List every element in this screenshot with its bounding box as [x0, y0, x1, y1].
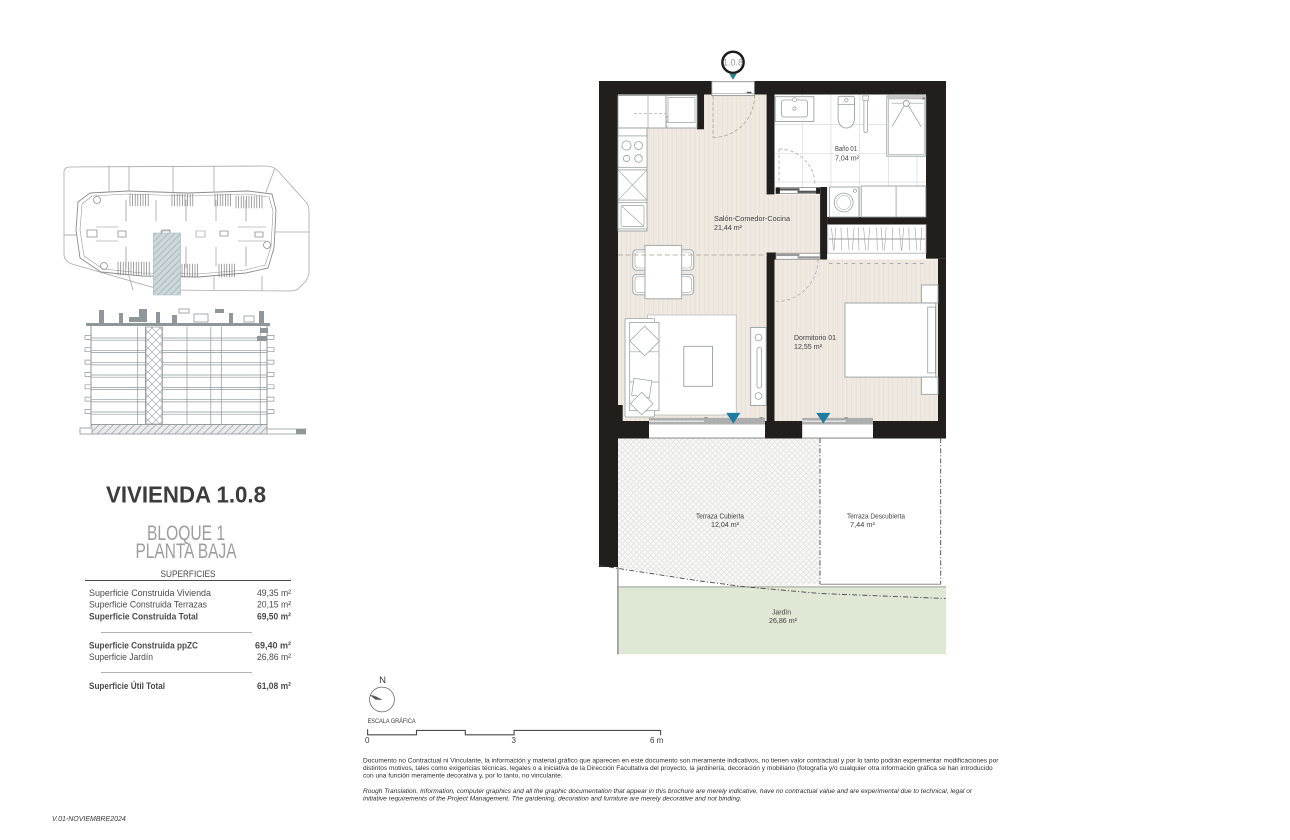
svg-text:1.0.8: 1.0.8	[723, 58, 743, 68]
svg-text:ESCALA GRÁFICA: ESCALA GRÁFICA	[368, 716, 416, 725]
svg-text:con una función meramente deco: con una función meramente decorativa y, …	[363, 773, 563, 780]
svg-text:initiative requirements of the: initiative requirements of the Project M…	[363, 796, 742, 803]
svg-text:Superficie Construida ppZC: Superficie Construida ppZC	[89, 640, 198, 651]
svg-text:Superficie Construida Vivienda: Superficie Construida Vivienda	[89, 587, 212, 598]
svg-text:Documento no Contractual ni Vi: Documento no Contractual ni Vinculante, …	[363, 758, 999, 765]
svg-text:SUPERFICIES: SUPERFICIES	[161, 569, 216, 580]
svg-text:Terraza Cubierta: Terraza Cubierta	[696, 514, 744, 521]
svg-text:Superficie Útil Total: Superficie Útil Total	[89, 680, 165, 691]
svg-text:3: 3	[512, 736, 517, 745]
svg-text:12,04 m²: 12,04 m²	[711, 522, 740, 529]
svg-text:20,15 m²: 20,15 m²	[257, 599, 291, 610]
svg-text:12,55 m²: 12,55 m²	[794, 344, 823, 351]
svg-text:21,44 m²: 21,44 m²	[714, 225, 743, 232]
svg-text:0: 0	[365, 736, 370, 745]
svg-text:N: N	[379, 675, 386, 686]
svg-text:26,86 m²: 26,86 m²	[257, 651, 291, 662]
svg-text:PLANTA BAJA: PLANTA BAJA	[136, 540, 237, 563]
svg-text:Salón-Comedor-Cocina: Salón-Comedor-Cocina	[714, 216, 790, 223]
svg-text:Superficie Construida Total: Superficie Construida Total	[89, 611, 198, 622]
svg-text:distintos motivos, tales como: distintos motivos, tales como exigencias…	[363, 765, 993, 772]
svg-text:69,50 m²: 69,50 m²	[257, 611, 291, 622]
svg-text:V.01-NOVIEMBRE2024: V.01-NOVIEMBRE2024	[52, 816, 126, 823]
svg-text:Terraza Descubierta: Terraza Descubierta	[847, 514, 905, 521]
svg-text:Jardín: Jardín	[772, 610, 791, 617]
svg-text:49,35 m²: 49,35 m²	[257, 587, 291, 598]
svg-text:Rough Translation. Information: Rough Translation. Information, computer…	[363, 788, 973, 795]
svg-text:7,44 m²: 7,44 m²	[850, 522, 876, 529]
svg-text:6 m: 6 m	[650, 736, 664, 745]
svg-text:7,04 m²: 7,04 m²	[835, 156, 860, 163]
svg-text:Superficie Jardín: Superficie Jardín	[89, 651, 153, 662]
svg-text:69,40 m²: 69,40 m²	[255, 640, 291, 651]
svg-text:VIVIENDA 1.0.8: VIVIENDA 1.0.8	[106, 482, 266, 508]
svg-text:Superficie Construida Terrazas: Superficie Construida Terrazas	[89, 599, 207, 610]
svg-text:Dormitorio 01: Dormitorio 01	[794, 335, 836, 342]
svg-text:Baño 01: Baño 01	[835, 146, 857, 153]
svg-text:26,86 m²: 26,86 m²	[769, 618, 798, 625]
svg-text:61,08 m²: 61,08 m²	[257, 680, 291, 691]
